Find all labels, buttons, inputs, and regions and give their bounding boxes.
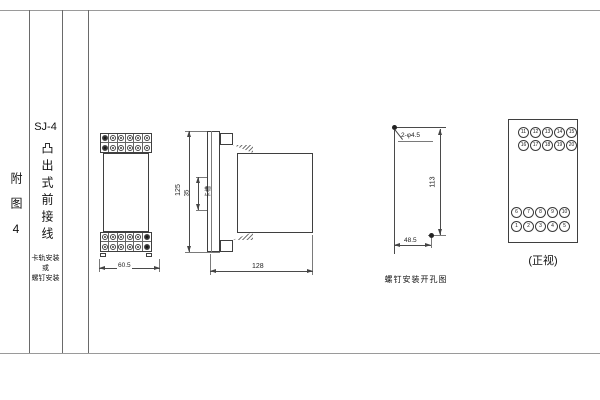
hole-top-line <box>393 127 446 128</box>
terminal-cell <box>109 233 117 242</box>
dim-ext-line <box>185 252 220 253</box>
type-label: 凸出式前接线 <box>39 142 56 244</box>
terminal-number: 13 <box>542 127 553 138</box>
terminal-cell <box>118 242 126 251</box>
dim-arrow <box>210 269 216 273</box>
mount-foot-right <box>146 253 152 257</box>
terminal-number: 3 <box>535 221 546 232</box>
mount-note-line1: 卡轨安装 <box>29 255 62 263</box>
terminal-number: 11 <box>518 127 529 138</box>
terminal-number: 16 <box>518 140 529 151</box>
terminal-number: 2 <box>523 221 534 232</box>
terminal-cell <box>101 134 109 143</box>
terminal-number: 17 <box>530 140 541 151</box>
mount-note-line2: 或 <box>29 265 62 273</box>
screw-icon <box>144 145 150 151</box>
dim-arrow <box>187 131 191 137</box>
terminal-cell <box>109 134 117 143</box>
terminal-cell <box>118 143 126 152</box>
terminal-cell <box>134 134 142 143</box>
terminal-cell <box>143 233 151 242</box>
mount-note-line3: 螺钉安装 <box>29 275 62 283</box>
drawing-sheet: 附图4 SJ-4 凸出式前接线 卡轨安装 或 螺钉安装 <box>0 0 600 400</box>
holes-label: 2-φ4.5 <box>400 132 421 140</box>
screw-icon <box>135 135 141 141</box>
dim-ext-line <box>431 238 432 248</box>
screw-icon <box>102 244 108 250</box>
terminal-number: 15 <box>566 127 577 138</box>
terminal-number: 7 <box>523 207 534 218</box>
frame-line-col2 <box>62 10 63 353</box>
terminal-number: 14 <box>554 127 565 138</box>
figure-label: 附图4 <box>8 172 25 249</box>
dim-width-label: 60.5 <box>117 262 132 270</box>
screw-icon <box>102 135 108 141</box>
terminal-number: 4 <box>547 221 558 232</box>
terminal-row-4: 1 2 3 4 5 <box>511 221 570 232</box>
gusset-bottom <box>233 232 253 240</box>
screw-icon <box>118 145 124 151</box>
screw-icon <box>144 234 150 240</box>
terminal-cell <box>101 233 109 242</box>
terminal-view-caption: (正视) <box>508 252 578 268</box>
dim-height-label: 125 <box>175 184 183 196</box>
terminal-cell <box>101 143 109 152</box>
side-step-bottom <box>220 240 233 252</box>
terminal-cell <box>118 134 126 143</box>
screw-icon <box>110 234 116 240</box>
terminal-number: 8 <box>535 207 546 218</box>
screw-icon <box>118 135 124 141</box>
terminal-cell <box>101 242 109 251</box>
dim-ext-line <box>196 210 207 211</box>
terminal-cell <box>134 242 142 251</box>
screw-icon <box>102 234 108 240</box>
terminal-cell <box>126 134 134 143</box>
screw-icon <box>127 145 133 151</box>
mount-foot-left <box>100 253 106 257</box>
screw-icon <box>135 234 141 240</box>
dim-arrow <box>187 246 191 252</box>
terminal-cell <box>126 143 134 152</box>
dim-arrow <box>425 243 431 247</box>
dim-arrow <box>196 177 200 183</box>
dim-arrow <box>438 129 442 135</box>
screw-icon <box>135 244 141 250</box>
dim-hole-h-label: 48.5 <box>403 237 418 245</box>
terminal-number: 10 <box>559 207 570 218</box>
relay-body-side <box>237 153 313 233</box>
dim-arrow <box>196 204 200 210</box>
terminal-cell <box>109 242 117 251</box>
side-step-top <box>220 133 233 145</box>
slot-name-label: 卡槽 <box>205 186 213 198</box>
screw-icon <box>127 135 133 141</box>
screw-icon <box>127 234 133 240</box>
terminal-number: 18 <box>542 140 553 151</box>
terminal-number: 5 <box>559 221 570 232</box>
terminal-number: 20 <box>566 140 577 151</box>
dim-line-depth <box>210 271 313 272</box>
gusset-top <box>233 145 253 153</box>
screw-icon <box>144 135 150 141</box>
dim-hole-v-label: 113 <box>430 176 438 187</box>
frame-line-bottom <box>0 353 600 354</box>
terminal-cell <box>143 242 151 251</box>
relay-body-front <box>103 153 149 232</box>
dim-slot-label: 35 <box>183 190 191 197</box>
screw-icon <box>110 244 116 250</box>
terminal-row-3: 6 7 8 9 10 <box>511 207 570 218</box>
dim-arrow <box>99 266 105 270</box>
dim-arrow <box>394 243 400 247</box>
hole-left-line <box>394 127 395 254</box>
terminal-cell <box>143 134 151 143</box>
dim-line-hole-v <box>440 129 441 235</box>
terminal-number: 9 <box>547 207 558 218</box>
terminal-row-1: 11 12 13 14 15 <box>518 127 577 138</box>
label-underline <box>398 141 433 142</box>
front-terminal-block-top <box>100 133 152 153</box>
terminal-cell <box>109 143 117 152</box>
frame-line-col3 <box>88 10 89 353</box>
screw-icon <box>110 145 116 151</box>
dim-arrow <box>154 266 160 270</box>
screw-icon <box>144 244 150 250</box>
terminal-row-2: 16 17 18 19 20 <box>518 140 577 151</box>
terminal-number: 1 <box>511 221 522 232</box>
hole-view-caption: 螺钉安装开孔图 <box>378 274 454 285</box>
screw-icon <box>135 145 141 151</box>
terminal-number: 19 <box>554 140 565 151</box>
dim-depth-label: 128 <box>251 263 265 271</box>
dim-arrow <box>307 269 313 273</box>
front-terminal-block-bottom <box>100 232 152 252</box>
terminal-cell <box>134 233 142 242</box>
screw-icon <box>118 234 124 240</box>
screw-icon <box>110 135 116 141</box>
screw-icon <box>127 244 133 250</box>
terminal-cell <box>143 143 151 152</box>
terminal-cell <box>126 233 134 242</box>
frame-line-top <box>0 10 600 11</box>
terminal-cell <box>134 143 142 152</box>
terminal-number: 6 <box>511 207 522 218</box>
terminal-cell <box>126 242 134 251</box>
terminal-number: 12 <box>530 127 541 138</box>
frame-line-col1 <box>29 10 30 353</box>
screw-icon <box>118 244 124 250</box>
screw-icon <box>102 145 108 151</box>
terminal-cell <box>118 233 126 242</box>
model-label: SJ-4 <box>29 121 62 133</box>
